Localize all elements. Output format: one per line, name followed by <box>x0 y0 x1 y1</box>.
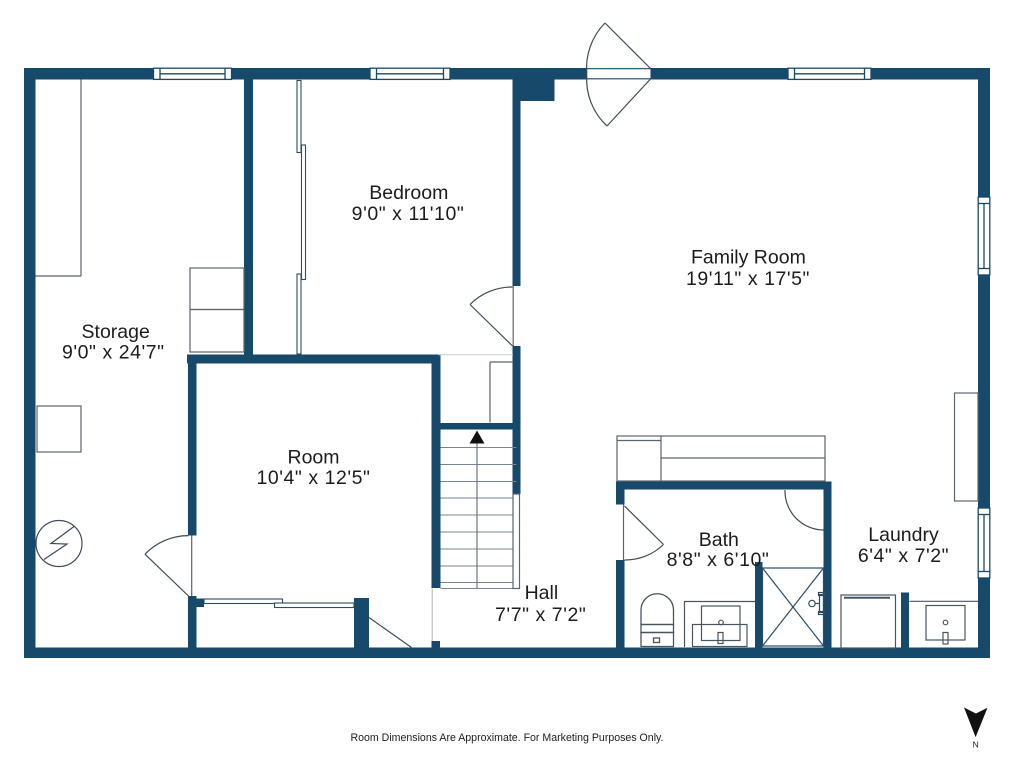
svg-text:Room: Room <box>287 447 339 469</box>
svg-text:Bedroom: Bedroom <box>369 182 448 204</box>
svg-text:10'4" x 12'5": 10'4" x 12'5" <box>256 467 370 489</box>
svg-text:Bath: Bath <box>699 529 739 551</box>
svg-text:8'8" x 6'10": 8'8" x 6'10" <box>667 549 770 571</box>
svg-text:19'11" x 17'5": 19'11" x 17'5" <box>686 268 810 290</box>
svg-text:Laundry: Laundry <box>868 524 939 546</box>
svg-text:Hall: Hall <box>525 582 559 604</box>
svg-text:6'4" x 7'2": 6'4" x 7'2" <box>858 545 949 567</box>
svg-text:Room Dimensions Are Approximat: Room Dimensions Are Approximate. For Mar… <box>350 732 663 744</box>
svg-text:Family Room: Family Room <box>691 247 806 269</box>
svg-text:7'7" x 7'2": 7'7" x 7'2" <box>495 604 586 626</box>
svg-text:9'0" x 24'7": 9'0" x 24'7" <box>62 341 165 363</box>
svg-text:N: N <box>973 740 979 750</box>
svg-text:Storage: Storage <box>82 321 150 343</box>
svg-text:9'0" x 11'10": 9'0" x 11'10" <box>352 203 465 225</box>
